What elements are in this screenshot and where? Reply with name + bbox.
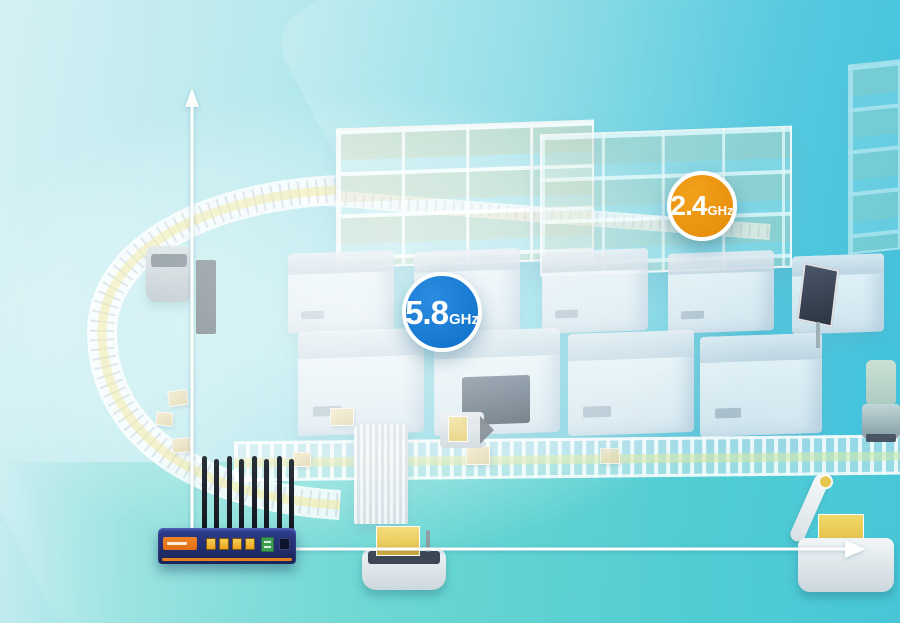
factory-scene: 2.4GHz 5.8GHz (0, 0, 900, 623)
cnc-machine (298, 328, 424, 436)
badge-5-8ghz: 5.8GHz (402, 272, 482, 352)
robot-chute (480, 416, 494, 444)
cargo-box (376, 526, 420, 556)
cnc-machine (568, 330, 694, 436)
agv-robot (146, 246, 192, 302)
cargo-box (155, 411, 173, 427)
badge-2-4ghz-unit: GHz (707, 204, 733, 217)
wireless-router (156, 456, 298, 566)
loader-robot (862, 360, 900, 444)
robot-panel (448, 416, 468, 442)
ethernet-port-icon (219, 538, 229, 550)
cargo-box (600, 448, 620, 464)
power-socket (279, 538, 290, 550)
ethernet-port-icon (206, 538, 216, 550)
loader-top (866, 360, 896, 406)
ethernet-ports (206, 538, 255, 550)
robotic-arm-agv (792, 470, 896, 592)
antenna-icon (252, 456, 257, 530)
antenna-icon (277, 456, 282, 530)
cargo-box (171, 437, 191, 453)
antenna-icon (202, 456, 207, 530)
antenna-icon (239, 459, 244, 533)
display-pole (816, 322, 820, 348)
factory-floor (0, 462, 900, 623)
door-pillar (196, 260, 216, 334)
router-logo (163, 537, 197, 550)
cnc-machine (668, 250, 774, 334)
antenna-icon (227, 456, 232, 530)
router-body (158, 528, 296, 564)
badge-5-8ghz-value: 5.8 (405, 296, 448, 329)
conveyor-guide-stripe (234, 452, 900, 468)
terminal-block (261, 537, 274, 552)
cnc-machine (542, 248, 648, 334)
loader-base (866, 434, 896, 442)
antenna-icon (214, 459, 219, 533)
ethernet-port-icon (245, 538, 255, 550)
cargo-box (330, 408, 354, 426)
storage-rack (848, 59, 900, 254)
ethernet-port-icon (232, 538, 242, 550)
badge-5-8ghz-unit: GHz (449, 312, 479, 327)
information-display (797, 262, 839, 327)
cargo-box (167, 389, 189, 408)
robotic-workstation (440, 406, 492, 448)
router-accent-strip (162, 558, 292, 561)
loader-body (862, 404, 900, 438)
badge-2-4ghz-label: 2.4GHz (671, 192, 734, 220)
router-antennas (202, 456, 294, 530)
badge-5-8ghz-label: 5.8GHz (405, 296, 479, 329)
agv-sensor-mast (426, 530, 430, 552)
cnc-machine (700, 333, 822, 437)
cargo-box (466, 446, 490, 465)
antenna-icon (289, 459, 294, 533)
spiral-conveyor-tower (354, 424, 408, 524)
antenna-icon (264, 459, 269, 533)
cnc-machine (288, 250, 394, 334)
badge-2-4ghz-value: 2.4 (671, 192, 707, 220)
arm-joint (816, 472, 836, 492)
agv-robot-with-cargo (362, 528, 446, 590)
agv-body (798, 538, 894, 592)
badge-2-4ghz: 2.4GHz (667, 171, 737, 241)
